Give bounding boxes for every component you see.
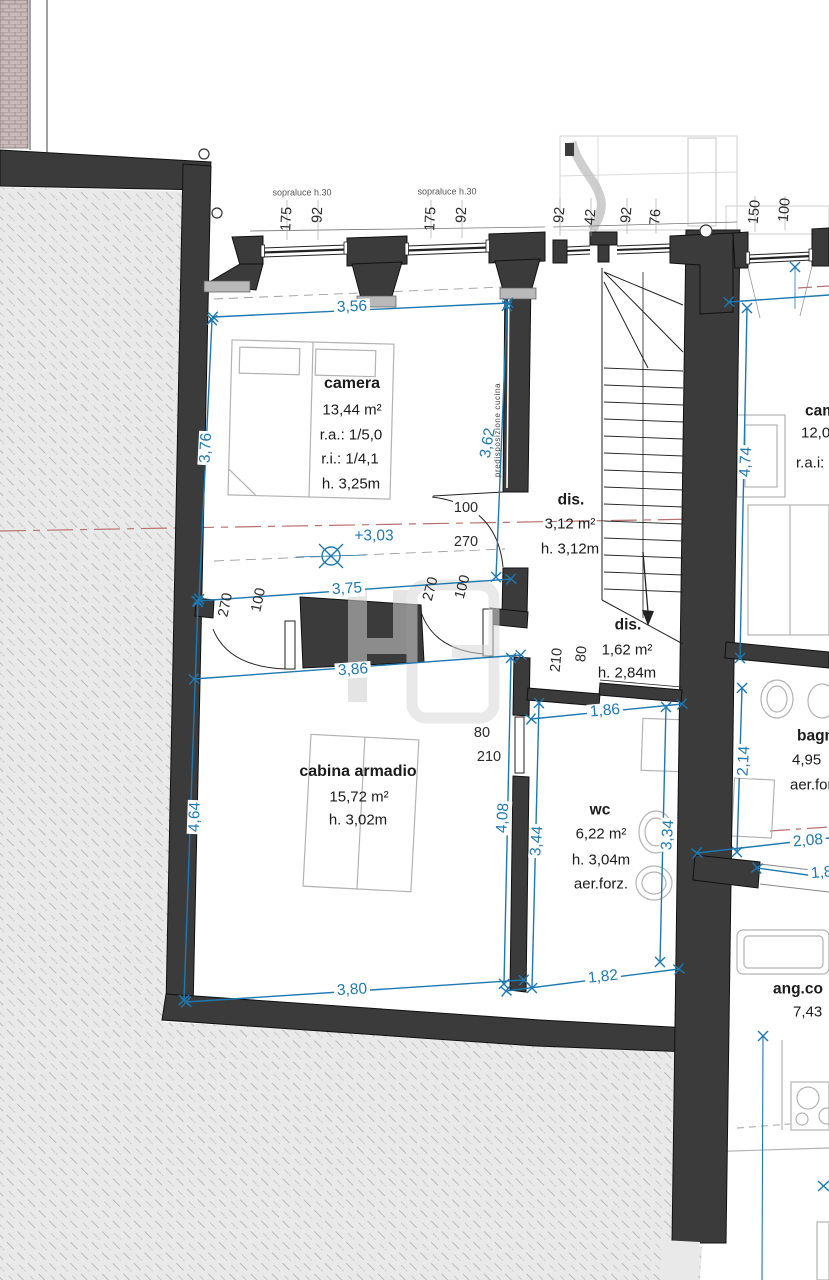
room-height-wc: h. 3,04m bbox=[572, 853, 630, 868]
door-left-arc bbox=[213, 629, 286, 669]
dim-corridor-top: 3,75 bbox=[328, 580, 365, 598]
dim-wc-right: 3,34 bbox=[659, 817, 677, 852]
room-area-camera-right: 12,0 bbox=[801, 426, 829, 441]
level-marker-icon bbox=[296, 544, 366, 568]
room-height-dis1: h. 3,12m bbox=[541, 542, 599, 557]
brick-wall-section bbox=[0, 0, 28, 148]
room-label-cabina: cabina armadio bbox=[299, 764, 416, 780]
predisposizione-note: predisposizione cucina bbox=[494, 383, 502, 477]
window3-dim-c: 92 bbox=[619, 205, 635, 224]
room-label-dis2: dis. bbox=[615, 617, 642, 633]
dim-corridor-bottom: 3,86 bbox=[334, 661, 371, 679]
room-vent-wc: aer.forz. bbox=[574, 877, 628, 892]
dim-right-partial: 1,8 bbox=[807, 864, 829, 882]
window4-dim-b: 100 bbox=[777, 196, 794, 223]
dim-cabina-bottom: 3,80 bbox=[333, 981, 370, 999]
window3-dim-a: 92 bbox=[552, 205, 568, 224]
window1-height: 92 bbox=[310, 206, 325, 225]
window2-height: 92 bbox=[454, 206, 469, 225]
door-dis2-height: 210 bbox=[549, 646, 566, 673]
floor-plan: camera 13,44 m² r.a.: 1/5,0 r.i.: 1/4,1 … bbox=[0, 0, 829, 1280]
dim-cabina-right: 4,08 bbox=[494, 800, 512, 835]
stair-direction-line bbox=[643, 552, 648, 612]
floor-plan-drawing bbox=[0, 0, 829, 1280]
dim-bagno-height: 2,14 bbox=[735, 744, 752, 779]
dim-wc-top: 1,86 bbox=[586, 702, 623, 721]
dim-bagno-bottom: 2,08 bbox=[789, 832, 826, 851]
window1-width: 175 bbox=[279, 206, 295, 233]
room-ra-camera-right: r.a.i: bbox=[796, 456, 824, 471]
room-height-cabina: h. 3,02m bbox=[329, 813, 387, 828]
room-area-dis1: 3,12 m² bbox=[545, 517, 596, 532]
window3-dim-b: 42 bbox=[583, 207, 599, 226]
dim-camera-right-height: 4,74 bbox=[737, 445, 754, 480]
room-height-camera: h. 3,25m bbox=[322, 477, 380, 492]
door-leaf bbox=[285, 621, 295, 669]
dim-wc-bottom: 1,82 bbox=[584, 967, 622, 986]
room-ra-camera: r.a.: 1/5,0 bbox=[320, 428, 383, 443]
stairs bbox=[602, 268, 683, 644]
door-camera-width: 100 bbox=[453, 501, 479, 516]
room-label-camera-right: cam bbox=[805, 403, 829, 419]
room-area-wc: 6,22 m² bbox=[576, 827, 627, 842]
room-label-dis1: dis. bbox=[558, 492, 585, 508]
level-label: +3,03 bbox=[351, 528, 396, 544]
room-area-ang-cottura: 7,43 bbox=[793, 1005, 822, 1020]
room-label-ang-cottura: ang.co bbox=[773, 981, 823, 997]
window2-width: 175 bbox=[423, 206, 439, 233]
door-wc-leaf bbox=[515, 717, 524, 773]
room-area-camera: 13,44 m² bbox=[322, 403, 381, 418]
door-wc-width: 80 bbox=[473, 726, 491, 741]
room-area-bagno: 4,95 bbox=[792, 753, 821, 768]
room-area-cabina: 15,72 m² bbox=[329, 790, 388, 805]
room-vent-bagno: aer.for bbox=[790, 778, 829, 793]
room-label-camera: camera bbox=[324, 376, 380, 392]
window3-dim-d: 76 bbox=[648, 207, 664, 226]
room-label-bagno: bagn bbox=[797, 728, 829, 744]
room-area-dis2: 1,62 m² bbox=[602, 643, 653, 658]
sopraluce-label-2: sopraluce h.30 bbox=[417, 188, 476, 197]
dim-top-width: 3,56 bbox=[334, 298, 371, 315]
stair-down-arrow-icon bbox=[642, 610, 654, 626]
room-label-wc: wc bbox=[590, 802, 611, 818]
door-dis2-width: 80 bbox=[574, 644, 590, 663]
sopraluce-label-1: sopraluce h.30 bbox=[272, 189, 331, 198]
dim-camera-left: 3,76 bbox=[197, 431, 214, 466]
dim-cabina-left: 4,64 bbox=[187, 800, 204, 835]
wc-fixtures bbox=[636, 718, 681, 900]
window4-dim-a: 150 bbox=[747, 198, 764, 225]
room-height-dis2: h. 2,84m bbox=[598, 666, 656, 681]
dim-wc-left: 3,44 bbox=[528, 823, 546, 858]
room-ri-camera: r.i.: 1/4,1 bbox=[321, 452, 379, 467]
door-wc-height: 210 bbox=[476, 750, 502, 765]
door-camera-height: 270 bbox=[453, 535, 479, 550]
